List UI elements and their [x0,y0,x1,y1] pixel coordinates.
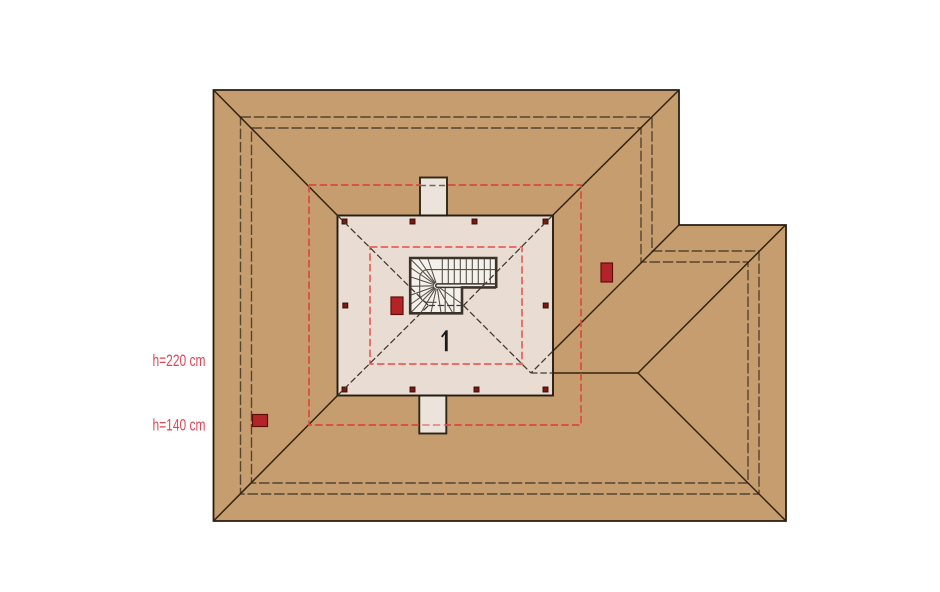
svg-text:h=140 cm: h=140 cm [153,417,206,435]
svg-text:h=220 cm: h=220 cm [153,352,206,370]
